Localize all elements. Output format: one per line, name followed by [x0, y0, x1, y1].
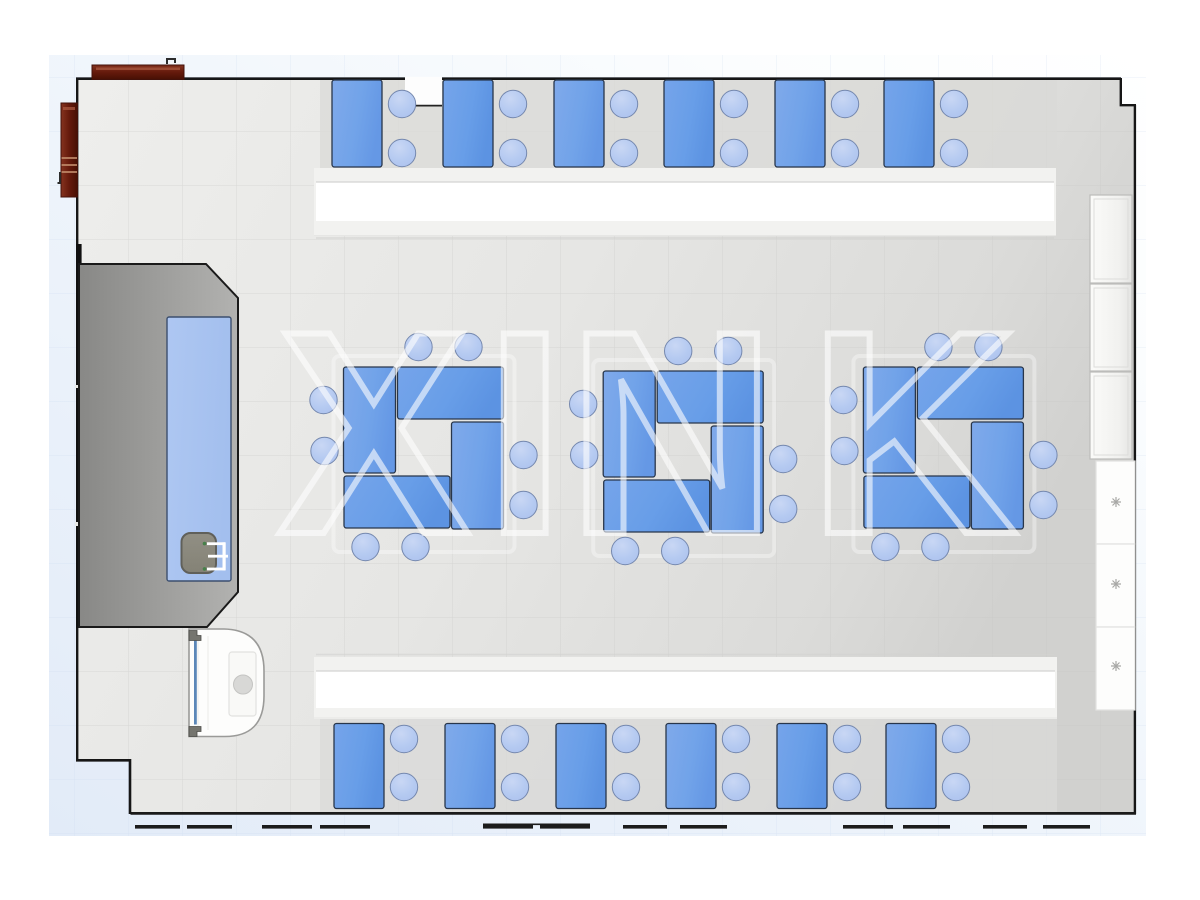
svg-text:XINK: XINK	[277, 271, 1036, 595]
